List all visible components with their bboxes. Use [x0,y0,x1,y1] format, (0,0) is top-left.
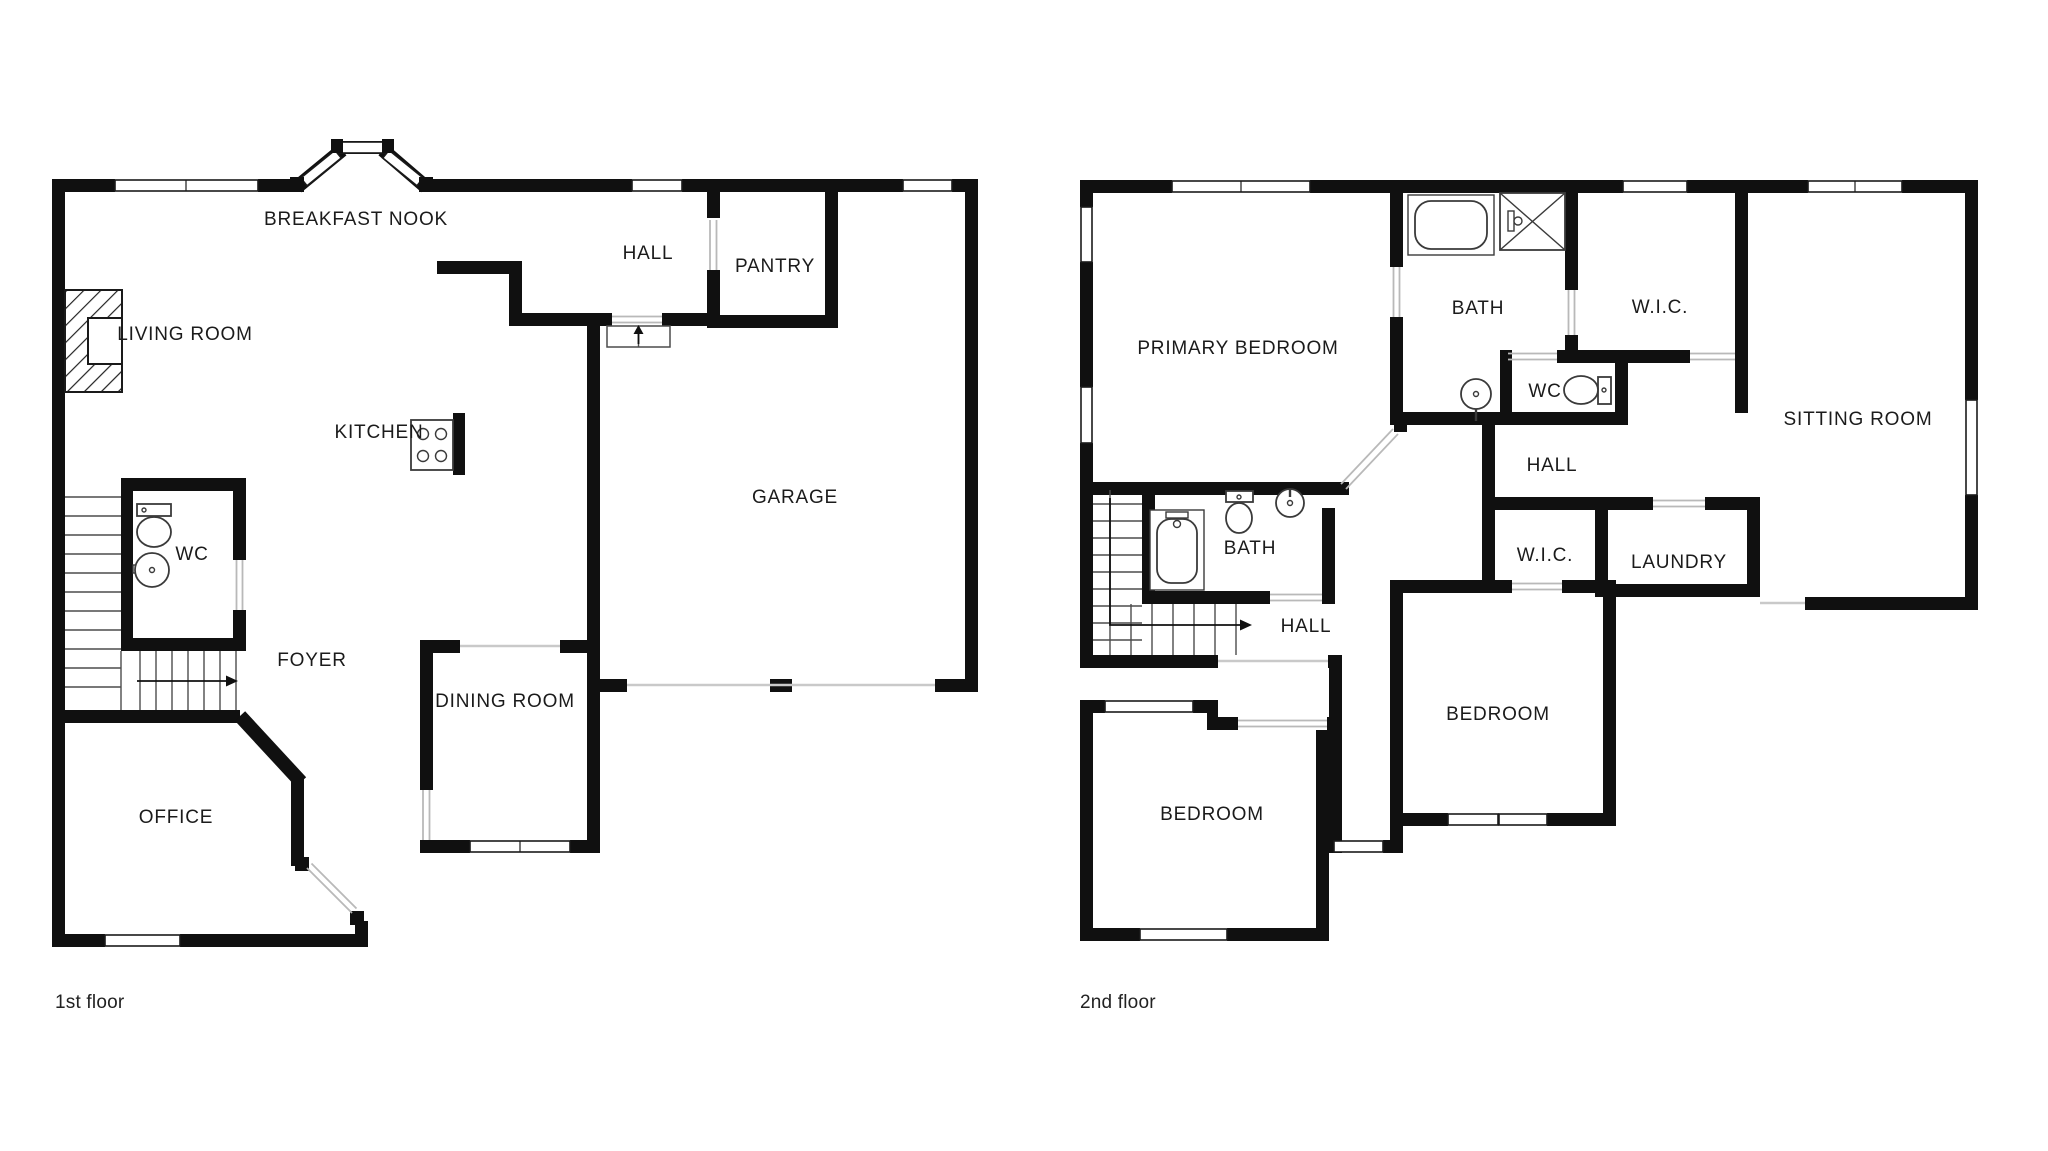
room-label-breakfast-nook: BREAKFAST NOOK [264,209,448,230]
sink-icon [133,553,169,587]
room-label-bedroom-left: BEDROOM [1160,804,1264,825]
room-label-hall-lower: HALL [1281,616,1332,637]
room-label-wic-mid: W.I.C. [1517,545,1574,566]
room-label-dining-room: DINING ROOM [435,691,575,712]
toilet2-icon [1564,376,1611,404]
bathtub2-icon [1150,510,1204,590]
room-label-primary-bedroom: PRIMARY BEDROOM [1137,338,1338,359]
shower-icon [1500,193,1565,250]
room-label-foyer: FOYER [277,650,346,671]
floor1-windows [105,180,952,946]
floor2-doors [1218,267,1805,727]
room-label-hall-upper: HALL [1527,455,1578,476]
room-label-kitchen: KITCHEN [335,422,424,443]
toilet3-icon [1226,491,1253,533]
room-label-wc-2: WC [1528,381,1561,402]
room-label-hall-1: HALL [623,243,674,264]
garage-step-icon [607,325,670,347]
floor2-caption: 2nd floor [1080,992,1156,1013]
room-label-bath-primary: BATH [1452,298,1504,319]
room-label-bedroom-right: BEDROOM [1446,704,1550,725]
room-label-living-room: LIVING ROOM [117,324,252,345]
sink2-icon [1276,489,1304,517]
room-label-wic-primary: W.I.C. [1632,297,1689,318]
room-label-bath-2: BATH [1224,538,1276,559]
room-label-sitting-room: SITTING ROOM [1784,409,1933,430]
room-label-laundry: LAUNDRY [1631,552,1727,573]
floor-plan-page: LIVING ROOM BREAKFAST NOOK HALL PANTRY K… [0,0,2048,1151]
room-label-garage: GARAGE [752,487,838,508]
bay-window [290,139,433,192]
fireplace-icon [65,290,122,392]
floor2-plan: PRIMARY BEDROOM BATH W.I.C. SITTING ROOM… [1080,180,1978,1013]
bathtub-icon [1408,195,1494,255]
floor1-plan: LIVING ROOM BREAKFAST NOOK HALL PANTRY K… [52,139,978,1013]
toilet-icon [137,504,171,547]
room-label-pantry: PANTRY [735,256,815,277]
room-label-office: OFFICE [139,807,213,828]
room-label-wc-1: WC [175,544,208,565]
floor1-caption: 1st floor [55,992,125,1013]
